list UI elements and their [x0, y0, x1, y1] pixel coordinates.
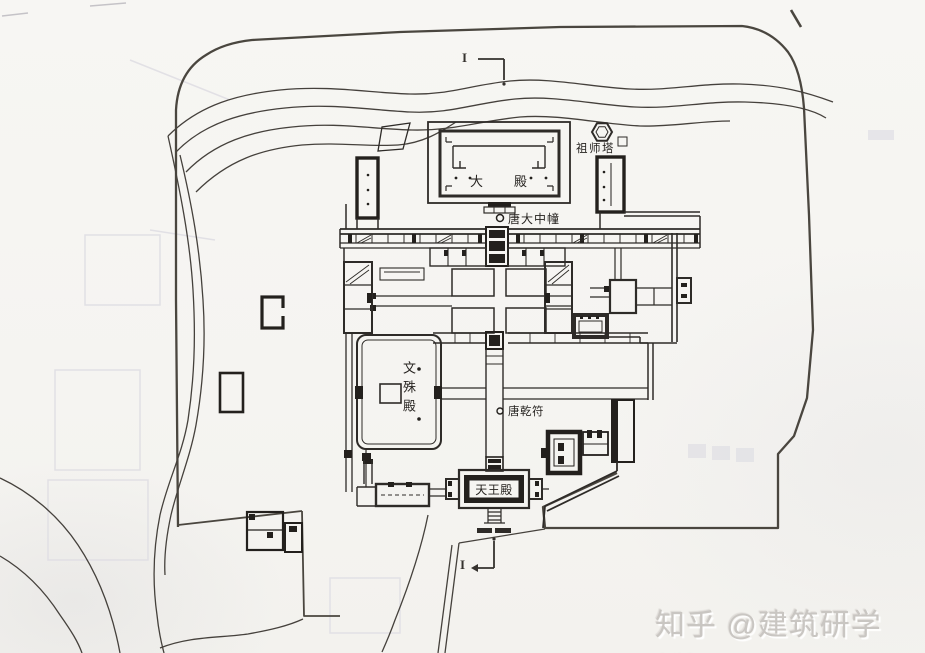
site-plan-drawing: [0, 0, 925, 653]
zhihu-watermark: 知乎 @建筑研学ers: [655, 600, 925, 653]
west-long-building: [357, 459, 429, 506]
heavenly-kings-hall-label: 天王殿: [469, 481, 519, 498]
tang-qianfu-pillar-mark: [497, 408, 503, 414]
tang-qianfu-pillar-label: 唐乾符: [508, 403, 544, 419]
section-marker-top-label: I: [462, 50, 467, 66]
tang-dazhong-pillar-mark: [497, 215, 504, 222]
terrain-buildings: [220, 297, 285, 412]
courtyard-core: [370, 248, 573, 333]
main-hall-group: [378, 122, 570, 213]
bleed-through-ghosts: [2, 3, 894, 633]
north-gallery: [340, 229, 700, 262]
manjusri-hall-label: 文殊殿: [399, 361, 418, 418]
main-hall-label: 大 殿: [470, 171, 536, 190]
scanned-site-plan-page: 大 殿 祖师塔 唐大中幢 文殊殿 唐乾符 天王殿 I I 知乎 @建筑研学ers: [0, 0, 925, 653]
tang-dazhong-pillar-label: 唐大中幢: [508, 210, 560, 227]
central-gate: [486, 227, 508, 266]
section-marker-bottom-label: I: [460, 557, 465, 573]
patriarch-pagoda-label: 祖师塔: [576, 140, 615, 156]
bottom-west-rooms: [247, 512, 302, 552]
southeast-buildings: [541, 400, 634, 528]
east-complex: [545, 233, 691, 400]
